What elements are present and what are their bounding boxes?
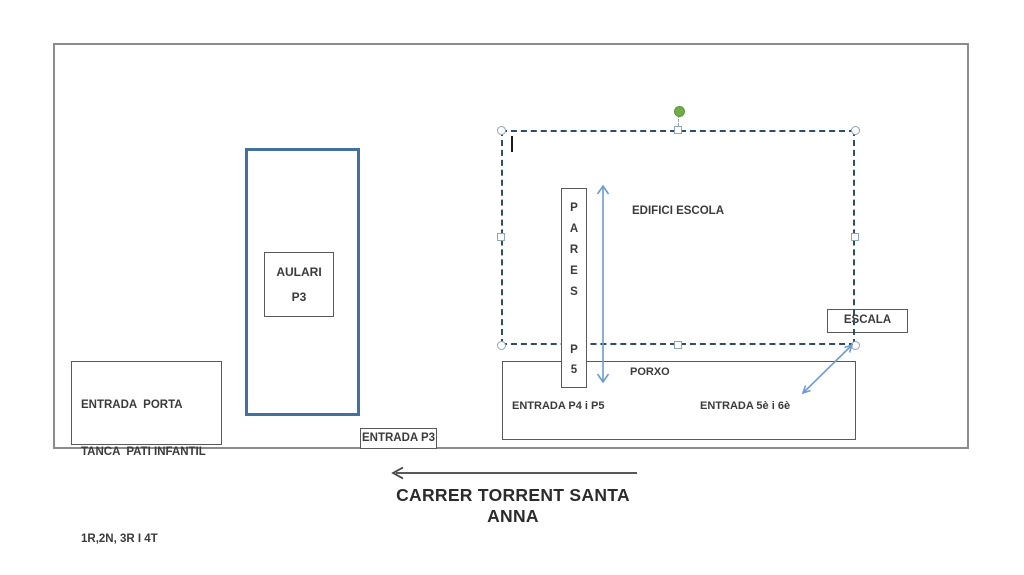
entrada-porta-box[interactable]: ENTRADA PORTA TANCA PATI INFANTIL 1R,2N,…	[71, 361, 222, 445]
entrada-5e-6e-label: ENTRADA 5è i 6è	[700, 399, 790, 414]
p5-letter: P	[562, 340, 586, 360]
pares-letters: P A R E S	[562, 198, 586, 303]
pares-letter: S	[562, 282, 586, 303]
edifici-escola-label: EDIFICI ESCOLA	[632, 204, 724, 220]
pares-letter: P	[562, 198, 586, 219]
selection-handle-right-middle[interactable]	[851, 233, 859, 241]
entrada-porta-line3: 1R,2N, 3R I 4T	[81, 532, 221, 548]
aulari-label-line1: AULARI	[276, 264, 321, 280]
selection-handle-top-left[interactable]	[497, 126, 506, 135]
drawing-canvas[interactable]: AULARI P3 ENTRADA PORTA TANCA PATI INFAN…	[0, 0, 1024, 575]
selection-handle-top-middle[interactable]	[674, 126, 682, 134]
pares-letter: E	[562, 261, 586, 282]
aulari-label-line2: P3	[292, 289, 307, 305]
entrada-porta-spacer	[81, 491, 221, 501]
pares-p5-box[interactable]: P A R E S P 5	[561, 188, 587, 388]
porxo-label: PORXO	[630, 365, 670, 380]
entrada-p3-box[interactable]: ENTRADA P3	[360, 428, 437, 449]
street-direction-arrow[interactable]	[393, 468, 637, 479]
p5-letters: P 5	[562, 340, 586, 380]
entrada-p4-p5-label: ENTRADA P4 i P5	[512, 399, 605, 414]
rotate-handle-icon[interactable]	[674, 106, 685, 117]
selection-handle-bottom-left[interactable]	[497, 341, 506, 350]
p5-letter: 5	[562, 360, 586, 380]
selection-handle-top-right[interactable]	[851, 126, 860, 135]
selection-handle-bottom-right[interactable]	[851, 341, 860, 350]
entrada-porta-line2: TANCA PATI INFANTIL	[81, 445, 221, 461]
aulari-label-box[interactable]: AULARI P3	[264, 252, 334, 317]
pares-letter: A	[562, 219, 586, 240]
edifici-escola-selected-shape[interactable]	[501, 130, 855, 345]
pares-letter: R	[562, 240, 586, 261]
selection-handle-left-middle[interactable]	[497, 233, 505, 241]
selection-handle-bottom-middle[interactable]	[674, 341, 682, 349]
entrada-p3-label: ENTRADA P3	[362, 431, 435, 447]
text-cursor-caret	[511, 136, 513, 152]
entrada-porta-line1: ENTRADA PORTA	[81, 398, 221, 414]
street-name-label: CARRER TORRENT SANTA ANNA	[376, 485, 650, 527]
